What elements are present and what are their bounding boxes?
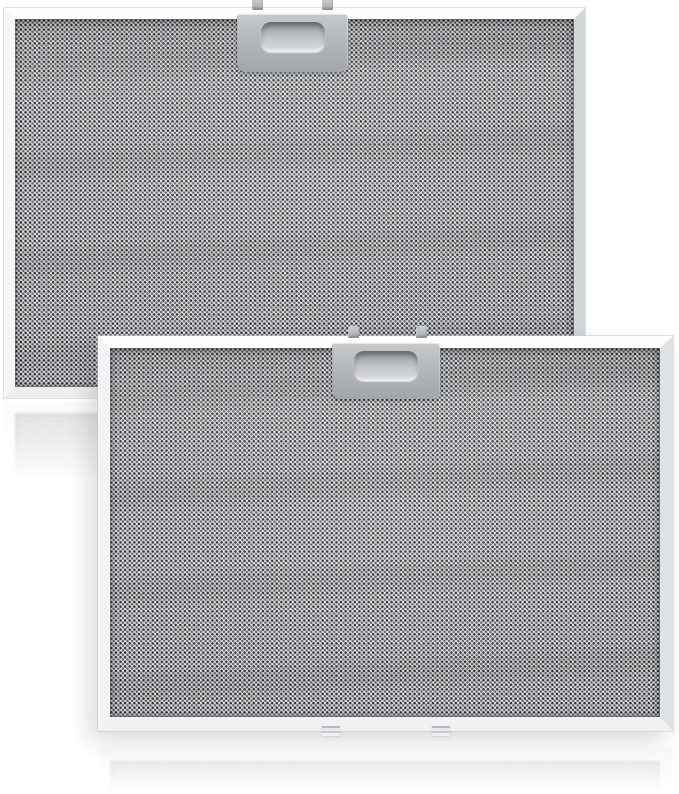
handle-plate-back xyxy=(237,14,348,72)
front-filter-reflection-copy xyxy=(98,747,673,794)
aluminum-mesh-back xyxy=(15,19,574,387)
product-photo-stage xyxy=(0,0,679,794)
mounting-pin-icon xyxy=(416,326,427,338)
aluminum-mesh-reflection xyxy=(110,761,660,794)
handle-recess-front xyxy=(354,351,418,381)
aluminum-mesh-front xyxy=(110,348,660,717)
grease-filter-front xyxy=(98,336,673,731)
mounting-pin-icon xyxy=(252,0,263,10)
handle-plate-front xyxy=(332,343,440,399)
front-filter-reflection xyxy=(98,747,673,794)
handle-recess-back xyxy=(261,22,325,52)
bottom-clip-icon xyxy=(322,724,340,736)
mounting-pin-icon xyxy=(322,0,333,10)
bottom-clip-icon xyxy=(432,724,450,736)
mounting-pin-icon xyxy=(348,326,359,338)
